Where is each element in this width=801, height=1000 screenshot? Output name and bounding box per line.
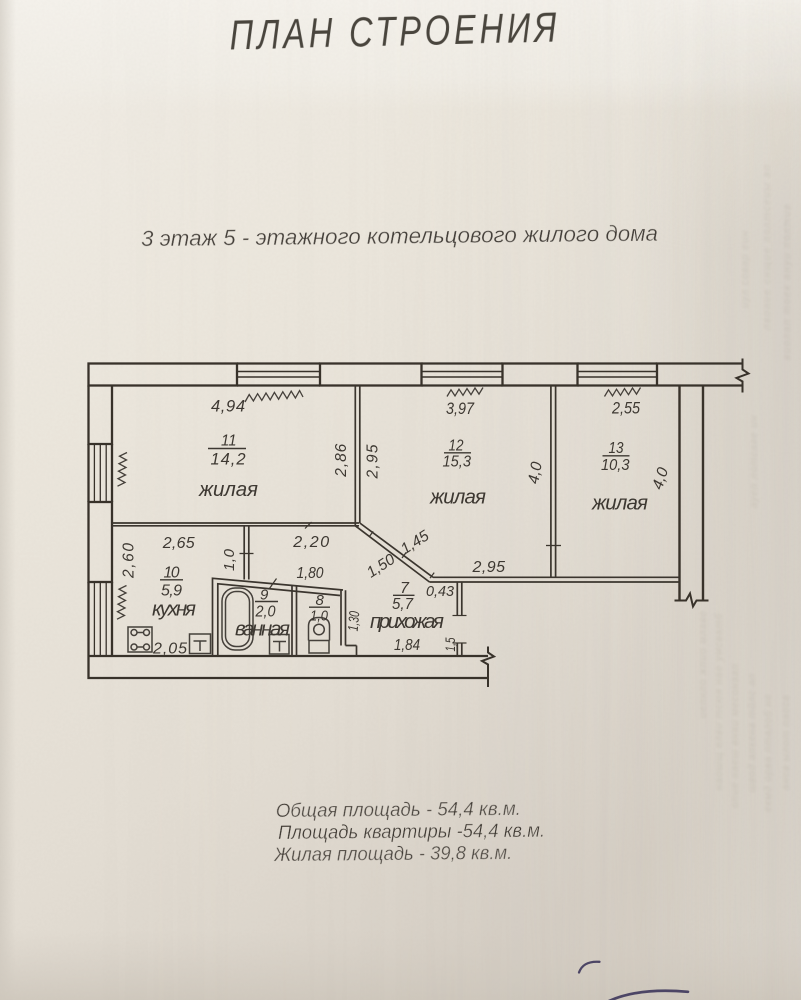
svg-text:2,55: 2,55 <box>611 400 641 418</box>
svg-text:иул совар еин: иул совар еин <box>740 230 751 308</box>
svg-text:ансв ылот паосв: ансв ылот паосв <box>781 694 792 790</box>
svg-text:2,20: 2,20 <box>292 534 329 551</box>
svg-text:10,3: 10,3 <box>601 457 630 474</box>
svg-text:ванная: ванная <box>235 618 290 641</box>
svg-text:Жилая площадь - 39,8 кв.м.: Жилая площадь - 39,8 кв.м. <box>273 843 512 866</box>
svg-text:13: 13 <box>609 440 624 457</box>
svg-text:опие наеш внаи месонавп: опие наеш внаи месонавп <box>730 663 741 808</box>
svg-text:ауеп лотсаве ин: ауеп лотсаве ин <box>749 415 760 508</box>
svg-text:жилая: жилая <box>198 478 258 501</box>
svg-text:1,80: 1,80 <box>297 565 324 582</box>
svg-text:11: 11 <box>221 433 237 450</box>
svg-text:виолап тоек ануи полтив: виолап тоек ануи полтив <box>782 203 793 360</box>
svg-text:14,2: 14,2 <box>211 451 246 469</box>
svg-text:2,60: 2,60 <box>121 543 138 579</box>
svg-text:екмд орва пталоб не: екмд орва пталоб не <box>762 693 774 812</box>
svg-text:2,05: 2,05 <box>152 641 187 658</box>
svg-text:15,3: 15,3 <box>443 454 472 471</box>
svg-text:жилая: жилая <box>429 486 486 509</box>
svg-text:жилая: жилая <box>591 492 648 515</box>
svg-text:наошщ елви тсюя нае умсватб: наошщ елви тсюя нае умсватб <box>713 613 725 790</box>
svg-text:8: 8 <box>316 592 325 609</box>
svg-text:4,94: 4,94 <box>211 398 245 416</box>
svg-text:1,84: 1,84 <box>394 637 420 654</box>
svg-text:Общая площадь - 54,4 кв.м.: Общая площадь - 54,4 кв.м. <box>276 799 521 822</box>
svg-text:10: 10 <box>164 565 180 582</box>
svg-text:2,95: 2,95 <box>472 559 506 576</box>
svg-text:Площадь квартиры -54,4 кв.м.: Площадь квартиры -54,4 кв.м. <box>278 821 545 844</box>
svg-text:12: 12 <box>449 438 464 455</box>
svg-text:ПЛАН СТРОЕНИЯ: ПЛАН СТРОЕНИЯ <box>229 4 561 59</box>
svg-text:2,65: 2,65 <box>162 535 195 552</box>
svg-text:лвоаие снщие полтсеиы ап: лвоаие снщие полтсеиы ап <box>762 164 773 332</box>
svg-text:прихожая: прихожая <box>370 610 444 633</box>
svg-text:7: 7 <box>400 580 410 597</box>
svg-text:кухня: кухня <box>152 598 196 621</box>
svg-text:1,0: 1,0 <box>310 608 329 625</box>
svg-text:1,30: 1,30 <box>346 610 364 631</box>
svg-text:2,95: 2,95 <box>364 444 381 479</box>
svg-text:иепнло жпио млаве: иепнло жпио млаве <box>698 610 709 718</box>
svg-text:1,0: 1,0 <box>221 548 238 571</box>
svg-text:3,97: 3,97 <box>446 400 475 418</box>
svg-text:2,86: 2,86 <box>333 443 350 477</box>
svg-text:швод апкенв тйлс ап: швод апкенв тйлс ап <box>747 673 758 792</box>
svg-text:0,43: 0,43 <box>426 583 455 600</box>
svg-text:1,5: 1,5 <box>442 637 458 651</box>
